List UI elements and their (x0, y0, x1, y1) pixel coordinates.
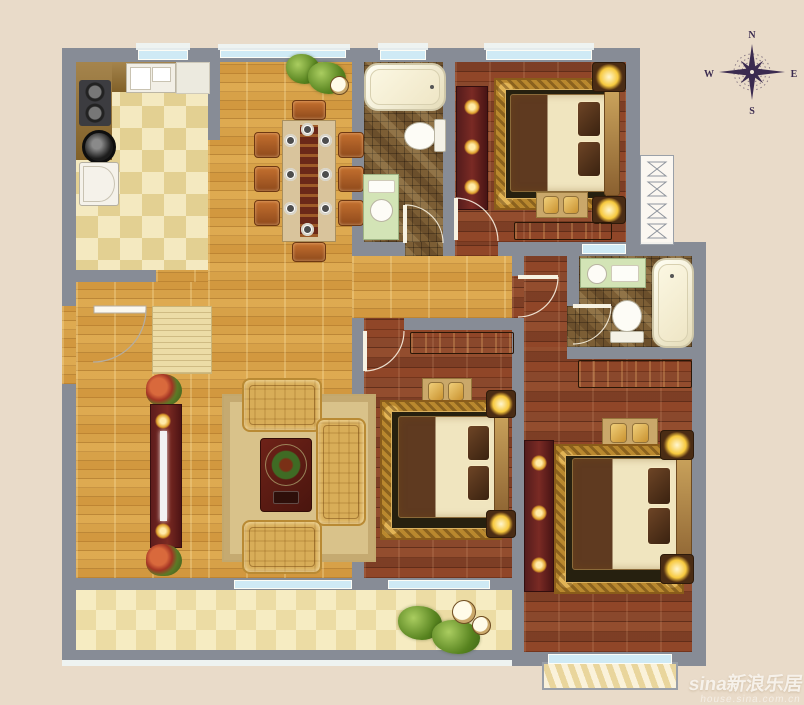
flower-pot (146, 544, 182, 576)
pillow (648, 468, 670, 504)
compass-north-label: N (748, 30, 756, 41)
table-runner (300, 125, 318, 237)
nightstand-lamp (660, 554, 694, 584)
towel (368, 180, 395, 193)
middle-bedroom-balcony-window (388, 580, 490, 589)
master-bay-window (542, 662, 678, 690)
dining-chair (254, 166, 280, 192)
kitchen-window (138, 50, 188, 60)
window-sill (484, 43, 594, 50)
wall-right-wing (692, 242, 706, 666)
doorway (62, 306, 76, 384)
nightstand-lamp (486, 390, 516, 418)
decor-light (155, 413, 171, 429)
master-bedroom-floor (524, 256, 567, 352)
bed-bench (536, 192, 588, 218)
bathtub (652, 258, 694, 348)
wardrobe-light (464, 139, 480, 155)
bathroom-1-window (380, 50, 426, 60)
window-sill (136, 43, 190, 50)
coffee-table (260, 438, 312, 512)
toilet-bowl (612, 300, 642, 332)
pillow (648, 508, 670, 544)
tray (273, 491, 299, 504)
dining-chair (292, 100, 326, 120)
wardrobe-light (531, 455, 547, 471)
window-sill (378, 43, 428, 50)
wall-middle-bedroom-top (404, 318, 518, 330)
plate (319, 168, 332, 181)
doorway (156, 270, 208, 282)
sink-bowl (587, 264, 607, 284)
wall-balcony-master (512, 578, 524, 664)
dresser (514, 222, 612, 240)
dining-chair (338, 200, 364, 226)
counter-end (176, 62, 210, 94)
stove (79, 80, 111, 126)
bathtub (364, 63, 446, 111)
doorway (405, 242, 443, 256)
floor-plan: N S W E sina新浪乐居 house.sina.com.cn (0, 0, 804, 705)
balcony-sill (62, 660, 518, 666)
wok (82, 130, 116, 164)
wall-left (62, 48, 76, 306)
wardrobe (524, 440, 554, 592)
toilet-tank (610, 331, 644, 343)
tv-cabinet (150, 404, 182, 548)
wall-mid-a (352, 242, 405, 256)
dining-chair (338, 166, 364, 192)
wall-middle-master-stub (512, 256, 524, 276)
pillow (468, 426, 489, 460)
coconut-decor (330, 76, 349, 95)
plate (319, 202, 332, 215)
flower-pot (146, 374, 182, 406)
sofa (242, 520, 322, 574)
flower-wreath (265, 444, 307, 486)
vanity (580, 258, 646, 288)
dining-chair (254, 200, 280, 226)
wardrobe-light (531, 505, 547, 521)
dresser (410, 332, 514, 354)
pillow (578, 142, 600, 176)
wall-bath2-bottom (567, 347, 706, 359)
compass-east-label: E (791, 69, 798, 80)
watermark-brand: sina新浪乐居 (687, 675, 804, 695)
sofa (316, 418, 366, 526)
toilet-bowl (404, 122, 436, 150)
nightstand-lamp (592, 196, 626, 224)
pillow (578, 102, 600, 136)
plate (284, 168, 297, 181)
plate (284, 134, 297, 147)
wall-bath2-left (567, 256, 579, 306)
wall-kitchen-bottom (76, 270, 156, 282)
refrigerator (79, 162, 119, 206)
bed-headboard (604, 90, 620, 196)
wardrobe (456, 86, 488, 210)
nightstand-lamp (592, 62, 626, 92)
wall-right-upper (626, 48, 640, 256)
plate (301, 123, 314, 136)
toilet-tank (434, 119, 446, 152)
dining-chair (292, 242, 326, 262)
wardrobe-light (531, 557, 547, 573)
kitchen-sink (126, 63, 176, 93)
bed-headboard (494, 412, 509, 522)
ac-platform (640, 155, 674, 245)
towel (611, 265, 639, 282)
sofa (242, 378, 322, 432)
plate (301, 223, 314, 236)
bathroom-2-window (582, 244, 626, 254)
wall-middle-master (512, 318, 524, 590)
doormat (152, 306, 212, 374)
decor-light (155, 523, 171, 539)
wardrobe-light (464, 99, 480, 115)
doorway (567, 306, 579, 347)
wall-left (62, 384, 76, 660)
dresser (578, 360, 692, 388)
watermark: sina新浪乐居 house.sina.com.cn (686, 675, 804, 705)
doorway (364, 318, 404, 330)
balcony-door-glass (234, 580, 352, 589)
nightstand-lamp (486, 510, 516, 538)
doorway (512, 276, 524, 318)
hallway-floor (352, 256, 512, 318)
master-window (548, 654, 672, 664)
compass-south-label: S (749, 106, 755, 117)
pillow (468, 466, 489, 500)
dining-chair (338, 132, 364, 158)
ac-unit-symbols (641, 156, 673, 244)
dining-window (220, 50, 346, 58)
bedroom-2-window (486, 50, 592, 60)
plate (284, 202, 297, 215)
wardrobe-light (464, 179, 480, 195)
sink-bowl (370, 199, 393, 222)
watermark-url: house.sina.com.cn (686, 695, 802, 705)
compass-rose: N S W E (700, 26, 804, 122)
tv (160, 431, 167, 521)
nightstand-lamp (660, 430, 694, 460)
vanity (363, 174, 399, 240)
wall-mid-b (443, 242, 455, 256)
compass-west-label: W (704, 69, 714, 80)
dining-chair (254, 132, 280, 158)
coconut-decor (472, 616, 491, 635)
plate (319, 134, 332, 147)
doorway (455, 242, 498, 256)
